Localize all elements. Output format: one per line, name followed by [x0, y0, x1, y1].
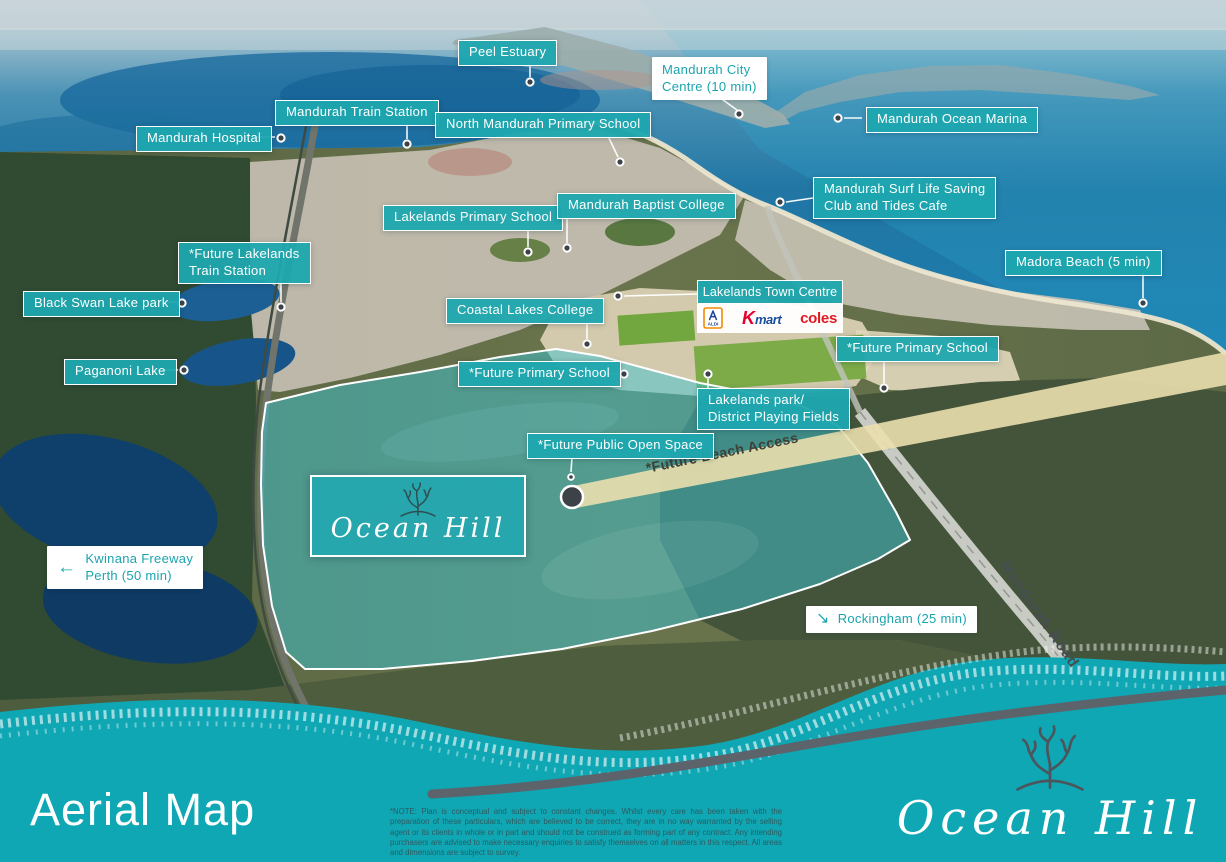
map-label-paganoni-lake: Paganoni Lake: [64, 359, 177, 385]
map-label-mandurah-hospital: Mandurah Hospital: [136, 126, 272, 152]
ocean-hill-footer-logo: Ocean Hill: [880, 722, 1220, 845]
label-text: Madora Beach (5 min): [1016, 254, 1151, 271]
label-text: Lakelands Town Centre: [697, 280, 843, 303]
label-text: Mandurah Ocean Marina: [877, 111, 1027, 128]
kmart-logo: Kmart: [742, 309, 781, 328]
label-text: Mandurah Surf Life Saving: [824, 181, 985, 198]
map-label-mandurah-surf-life-saving-club: Mandurah Surf Life Saving Club and Tides…: [813, 177, 996, 219]
map-label-future-lakelands-train-station: *Future Lakelands Train Station: [178, 242, 311, 284]
ocean-hill-script-text: Ocean Hill: [880, 791, 1220, 845]
label-text: Train Station: [189, 263, 300, 280]
map-label-madora-beach: Madora Beach (5 min): [1005, 250, 1162, 276]
tree-icon: [396, 481, 440, 517]
label-text: Mandurah Train Station: [286, 104, 428, 121]
beach-access-origin-dot: [561, 486, 583, 508]
label-text: Paganoni Lake: [75, 363, 166, 380]
label-text: District Playing Fields: [708, 409, 839, 426]
label-text: Kwinana Freeway: [85, 551, 193, 568]
label-text: *Future Primary School: [469, 365, 610, 382]
kmart-mart: mart: [755, 312, 781, 327]
label-text: Mandurah Hospital: [147, 130, 261, 147]
map-label-mandurah-city-centre: Mandurah City Centre (10 min): [652, 57, 767, 100]
label-text: Coastal Lakes College: [457, 302, 593, 319]
map-label-lakelands-park: Lakelands park/ District Playing Fields: [697, 388, 850, 430]
label-text: Perth (50 min): [85, 568, 193, 585]
label-text: *Future Primary School: [847, 340, 988, 357]
label-text: Club and Tides Cafe: [824, 198, 985, 215]
label-text: Mandurah Baptist College: [568, 197, 725, 214]
label-text: Centre (10 min): [662, 79, 757, 96]
ocean-hill-site-logo: Ocean Hill: [310, 475, 526, 557]
tree-icon: [1008, 722, 1092, 792]
svg-text:ALDI: ALDI: [708, 322, 719, 327]
map-label-north-mandurah-primary-school: North Mandurah Primary School: [435, 112, 651, 138]
label-text: Lakelands Primary School: [394, 209, 552, 226]
label-lines: Kwinana Freeway Perth (50 min): [85, 551, 193, 584]
label-text: Lakelands park/: [708, 392, 839, 409]
map-label-rockingham: ↘ Rockingham (25 min): [806, 606, 977, 633]
page-title: Aerial Map: [30, 784, 255, 836]
sports-field-1: [617, 310, 695, 345]
disclaimer-note: *NOTE: Plan is conceptual and subject to…: [390, 807, 782, 859]
ocean-hill-script-text: Ocean Hill: [331, 513, 506, 544]
arrow-left-icon: ←: [57, 558, 76, 577]
coles-logo: coles: [800, 311, 837, 326]
label-text: Peel Estuary: [469, 44, 546, 61]
map-label-kwinana-freeway: ← Kwinana Freeway Perth (50 min): [47, 546, 203, 589]
map-label-future-public-open-space: *Future Public Open Space: [527, 433, 714, 459]
label-text: *Future Lakelands: [189, 246, 300, 263]
label-text: *Future Public Open Space: [538, 437, 703, 454]
map-label-mandurah-train-station: Mandurah Train Station: [275, 100, 439, 126]
map-label-black-swan-lake-park: Black Swan Lake park: [23, 291, 180, 317]
town-centre-retailers: ALDI Kmart coles: [697, 303, 843, 333]
map-label-future-primary-school-east: *Future Primary School: [836, 336, 999, 362]
aldi-logo-icon: ALDI: [703, 307, 723, 329]
label-text: Mandurah City: [662, 62, 757, 79]
map-label-coastal-lakes-college: Coastal Lakes College: [446, 298, 604, 324]
label-text: North Mandurah Primary School: [446, 116, 640, 133]
map-label-lakelands-primary-school: Lakelands Primary School: [383, 205, 563, 231]
label-text: Black Swan Lake park: [34, 295, 169, 312]
arrow-southeast-icon: ↘: [816, 611, 830, 627]
aerial-map-page: *Future Beach Access Mandurah Road Peel …: [0, 0, 1226, 862]
map-label-future-primary-school-central: *Future Primary School: [458, 361, 621, 387]
label-text: Rockingham (25 min): [838, 611, 967, 628]
map-label-lakelands-town-centre: Lakelands Town Centre ALDI Kmart coles: [697, 280, 843, 333]
map-label-mandurah-ocean-marina: Mandurah Ocean Marina: [866, 107, 1038, 133]
map-label-peel-estuary: Peel Estuary: [458, 40, 557, 66]
kmart-k: K: [742, 308, 755, 328]
map-label-mandurah-baptist-college: Mandurah Baptist College: [557, 193, 736, 219]
